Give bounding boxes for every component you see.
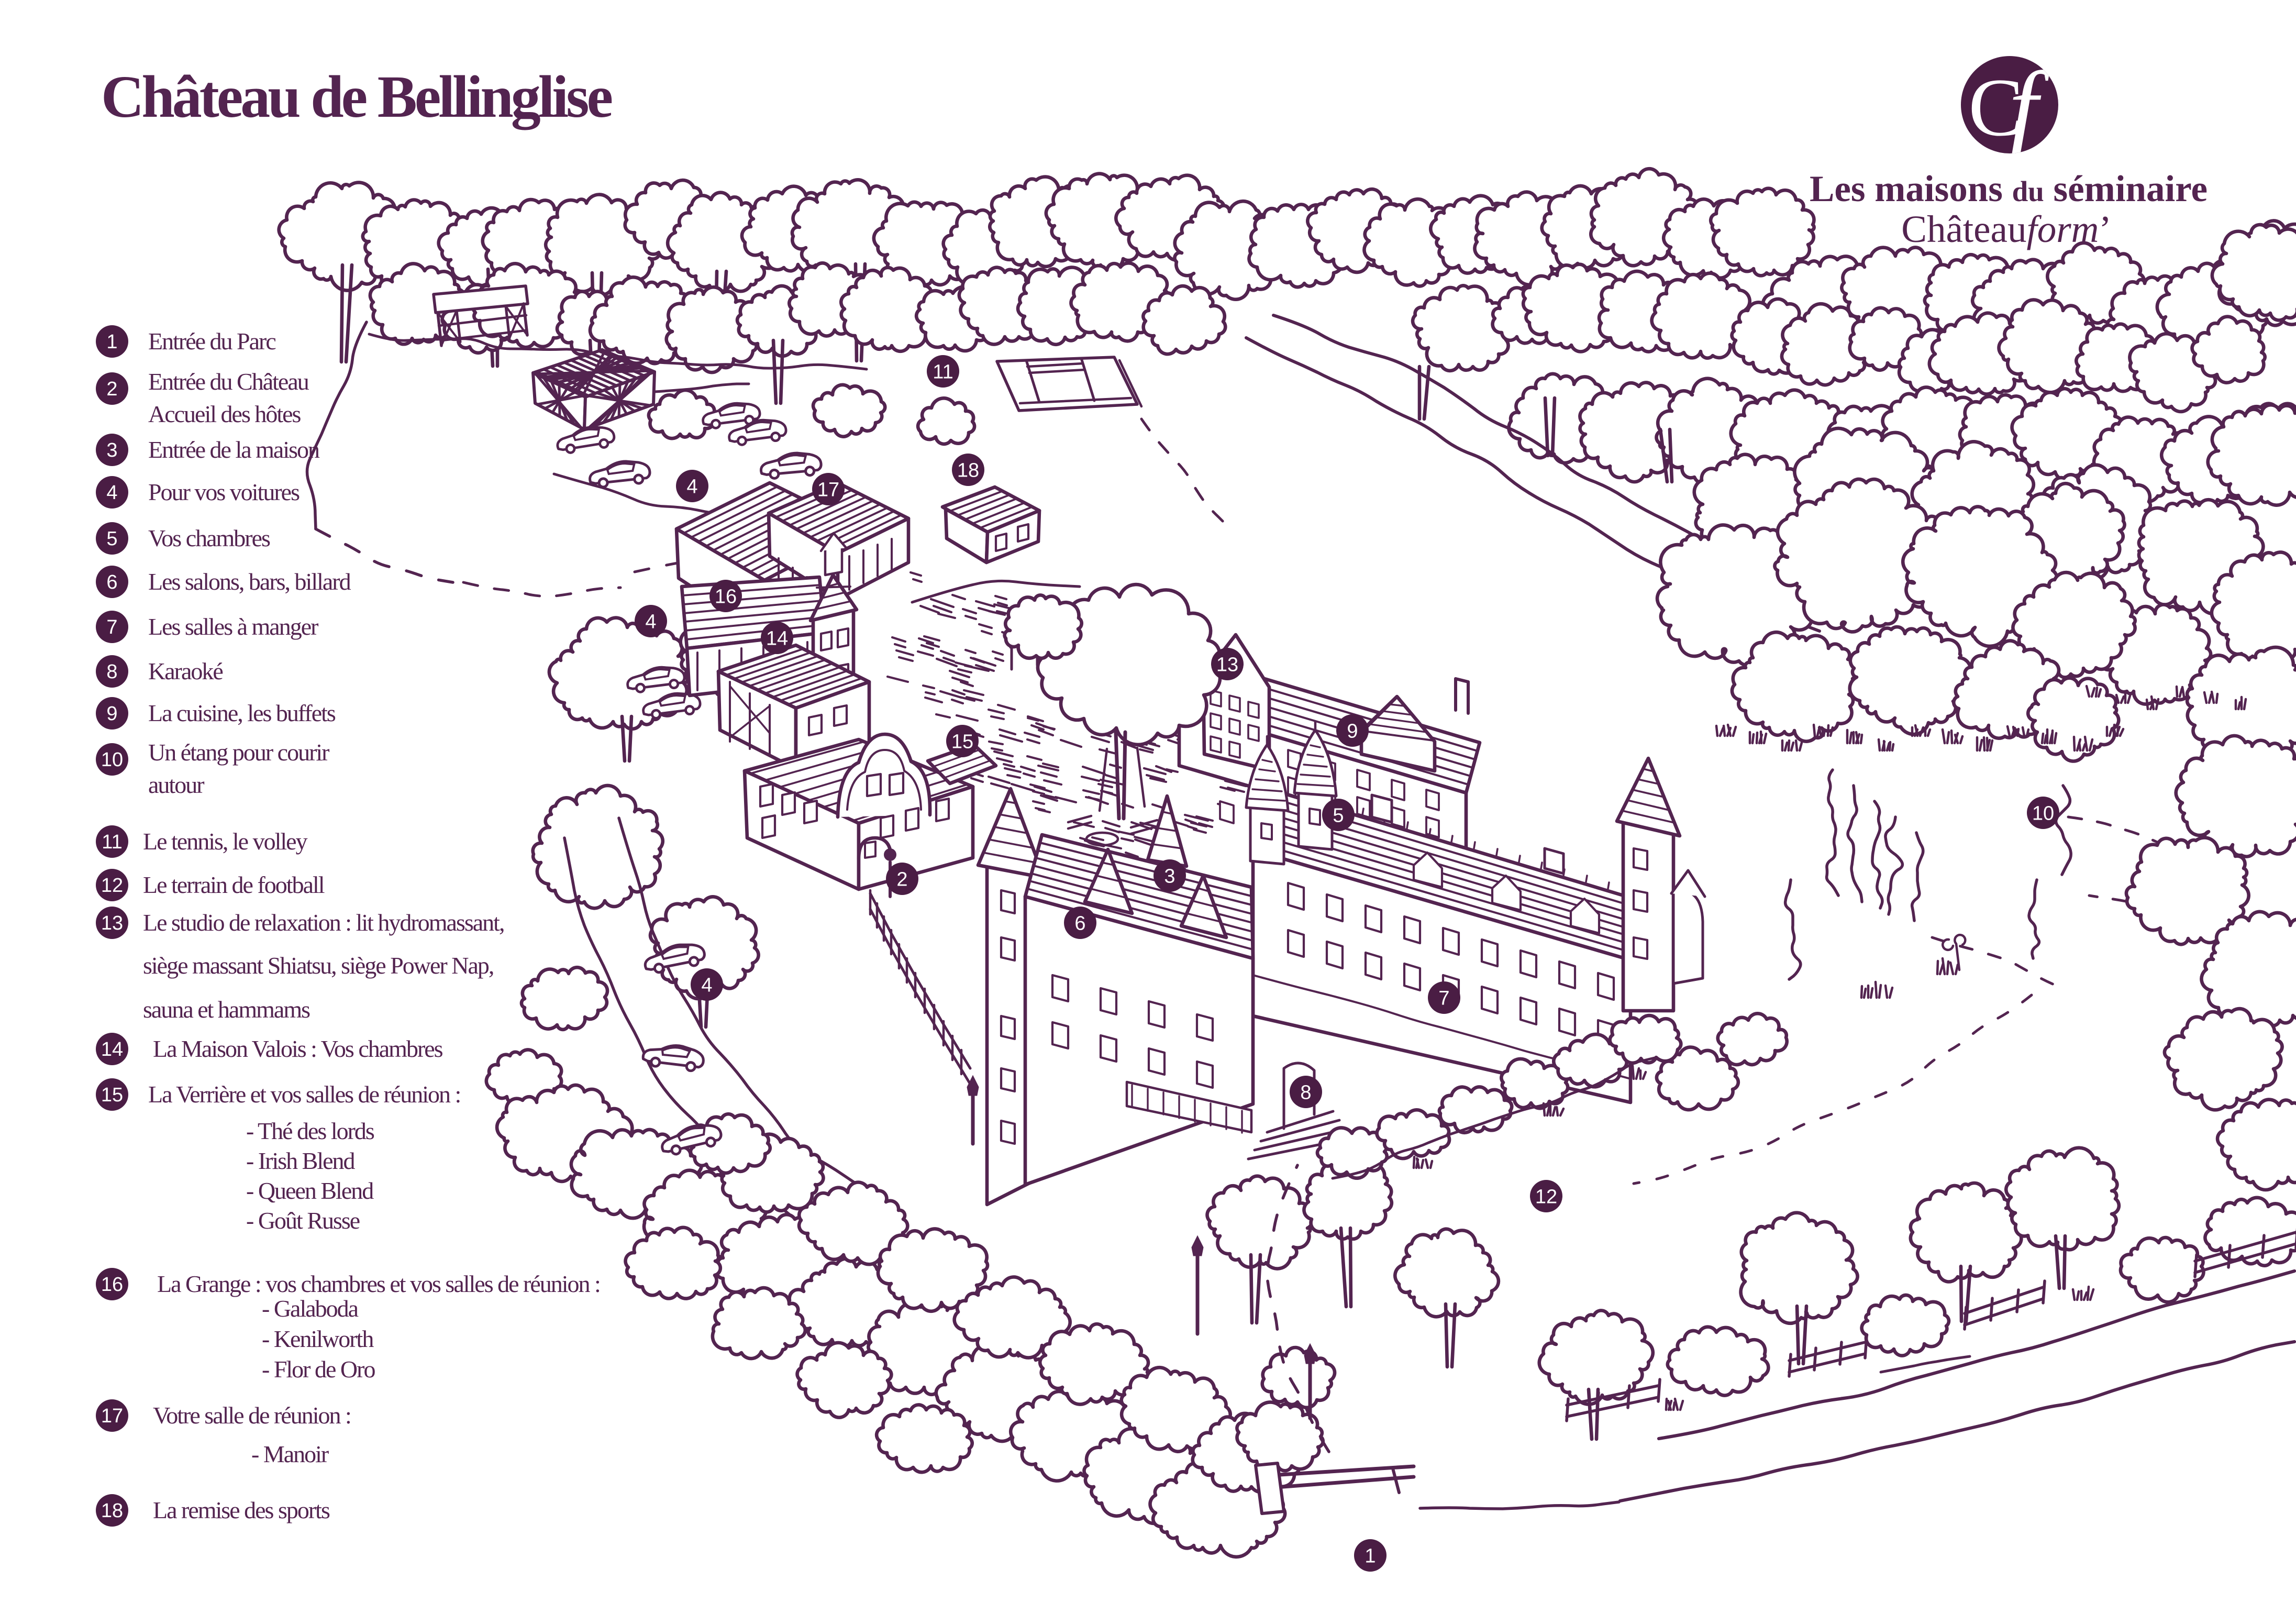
svg-text:16: 16 [715, 585, 737, 607]
svg-text:4: 4 [645, 611, 656, 633]
svg-text:autour: autour [148, 771, 204, 798]
svg-text:- Queen Blend: - Queen Blend [246, 1177, 374, 1204]
svg-text:1: 1 [106, 331, 117, 353]
svg-text:16: 16 [101, 1274, 123, 1296]
svg-text:6: 6 [106, 571, 117, 593]
svg-text:siège massant Shiatsu, siège P: siège massant Shiatsu, siège Power Nap, [143, 952, 493, 979]
svg-text:11: 11 [933, 361, 953, 383]
svg-text:5: 5 [106, 528, 117, 550]
svg-text:Le tennis, le volley: Le tennis, le volley [143, 828, 308, 855]
svg-text:14: 14 [766, 627, 788, 649]
svg-text:- Thé des lords: - Thé des lords [246, 1118, 374, 1144]
svg-text:Château de Bellinglise: Château de Bellinglise [101, 63, 612, 130]
svg-text:14: 14 [101, 1039, 123, 1060]
svg-text:Entrée du Château: Entrée du Château [148, 368, 309, 395]
svg-text:6: 6 [1074, 912, 1085, 934]
svg-text:- Manoir: - Manoir [251, 1441, 329, 1467]
svg-text:9: 9 [106, 703, 117, 725]
svg-text:15: 15 [101, 1084, 123, 1106]
svg-text:3: 3 [106, 439, 117, 461]
svg-text:1: 1 [1365, 1545, 1376, 1567]
svg-text:La Grange : vos chambres et vo: La Grange : vos chambres et vos salles d… [157, 1271, 600, 1297]
svg-text:La Verrière et vos salles de r: La Verrière et vos salles de réunion : [148, 1081, 460, 1108]
svg-text:- Galaboda: - Galaboda [262, 1295, 359, 1322]
svg-text:10: 10 [2032, 802, 2054, 824]
svg-text:3: 3 [1164, 865, 1175, 887]
svg-text:Votre salle de réunion :: Votre salle de réunion : [153, 1402, 351, 1429]
svg-text:2: 2 [106, 378, 117, 400]
svg-text:Les salons, bars, billard: Les salons, bars, billard [148, 568, 351, 595]
svg-text:2: 2 [896, 868, 907, 890]
svg-text:- Irish Blend: - Irish Blend [246, 1147, 356, 1174]
svg-text:Accueil des hôtes: Accueil des hôtes [148, 401, 301, 427]
svg-text:- Kenilworth: - Kenilworth [262, 1325, 374, 1352]
svg-text:La cuisine, les buffets: La cuisine, les buffets [148, 700, 336, 726]
svg-text:11: 11 [102, 831, 122, 853]
svg-text:9: 9 [1347, 720, 1358, 742]
svg-text:Le studio de relaxation : lit: Le studio de relaxation : lit hydromassa… [143, 909, 504, 936]
svg-text:Vos chambres: Vos chambres [148, 525, 270, 551]
svg-text:4: 4 [686, 476, 697, 498]
svg-text:Châteauform’: Châteauform’ [1901, 208, 2111, 250]
svg-text:7: 7 [1438, 987, 1449, 1009]
svg-text:18: 18 [957, 459, 979, 481]
svg-text:Pour vos voitures: Pour vos voitures [148, 479, 300, 505]
svg-text:7: 7 [106, 616, 117, 638]
svg-text:Les salles à manger: Les salles à manger [148, 613, 318, 640]
svg-text:15: 15 [951, 731, 973, 753]
svg-text:17: 17 [817, 479, 839, 501]
svg-text:4: 4 [701, 974, 712, 996]
svg-text:4: 4 [106, 482, 117, 504]
svg-text:- Goût Russe: - Goût Russe [246, 1207, 360, 1234]
svg-text:Karaoké: Karaoké [148, 658, 223, 684]
svg-text:Entrée de la maison: Entrée de la maison [148, 436, 320, 463]
svg-text:12: 12 [101, 875, 123, 897]
svg-text:- Flor de Oro: - Flor de Oro [262, 1356, 375, 1383]
svg-text:La remise des sports: La remise des sports [153, 1497, 330, 1523]
svg-text:18: 18 [101, 1500, 123, 1522]
svg-text:8: 8 [106, 661, 117, 683]
svg-text:13: 13 [101, 912, 123, 934]
svg-text:12: 12 [1535, 1186, 1557, 1208]
svg-text:8: 8 [1300, 1081, 1311, 1103]
svg-text:13: 13 [1216, 654, 1238, 676]
svg-text:Le terrain de football: Le terrain de football [143, 871, 325, 898]
svg-text:Les maisons du séminaire: Les maisons du séminaire [1810, 169, 2208, 209]
svg-text:Entrée du Parc: Entrée du Parc [148, 328, 275, 355]
svg-text:sauna et hammams: sauna et hammams [143, 996, 310, 1023]
svg-text:17: 17 [101, 1405, 123, 1427]
svg-text:La Maison Valois : Vos chambr: La Maison Valois : Vos chambres [153, 1035, 443, 1062]
svg-text:5: 5 [1333, 804, 1344, 826]
svg-text:10: 10 [101, 749, 123, 771]
svg-text:Un étang pour courir: Un étang pour courir [148, 739, 329, 766]
